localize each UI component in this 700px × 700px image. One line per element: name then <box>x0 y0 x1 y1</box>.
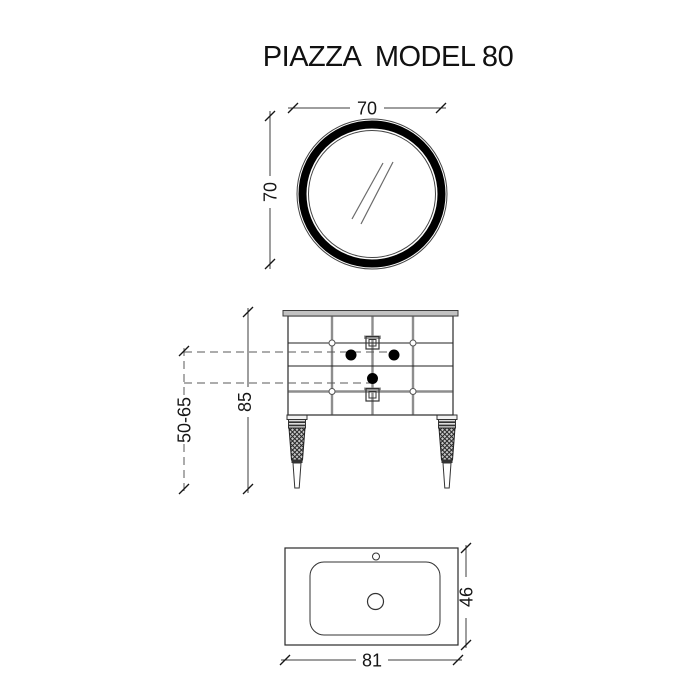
tufting-button <box>329 340 335 346</box>
vanity-countertop-edge <box>283 311 458 317</box>
mirror-glass <box>309 131 436 258</box>
tufting-button <box>410 340 416 346</box>
tufting-button <box>329 389 335 395</box>
mirror-height-dimension: 70 <box>261 111 281 269</box>
basin-depth-dimension: 46 <box>457 543 477 650</box>
faucet-mounting-hole <box>373 553 380 560</box>
mixer-height-range-label: 50-65 <box>175 397 195 443</box>
mirror-width-dimension: 70 <box>288 99 446 119</box>
mirror-width-label: 70 <box>357 99 377 119</box>
faucet-hole-dot <box>389 350 400 361</box>
basin-width-label: 81 <box>362 651 382 671</box>
mirror-height-label: 70 <box>261 182 281 202</box>
basin-depth-label: 46 <box>457 587 477 607</box>
vanity-front-view: 85 50-65 <box>175 307 459 494</box>
drawing-svg: 70 70 <box>0 0 700 700</box>
tufting-button <box>410 389 416 395</box>
mirror-front-view: 70 70 <box>261 99 448 270</box>
vanity-height-label: 85 <box>235 392 255 412</box>
mixer-height-range-dimension: 50-65 <box>175 346 195 494</box>
vanity-height-dimension: 85 <box>235 307 255 494</box>
vanity-left-leg <box>287 415 307 488</box>
technical-drawing-sheet: PIAZZA MODEL 80 <box>0 0 700 700</box>
basin-top-view: 81 46 <box>280 543 477 671</box>
vanity-right-leg <box>437 415 457 488</box>
basin-width-dimension: 81 <box>280 651 463 671</box>
drain-hole-dot <box>367 373 378 384</box>
drain-hole <box>368 594 384 610</box>
faucet-hole-dot <box>346 350 357 361</box>
